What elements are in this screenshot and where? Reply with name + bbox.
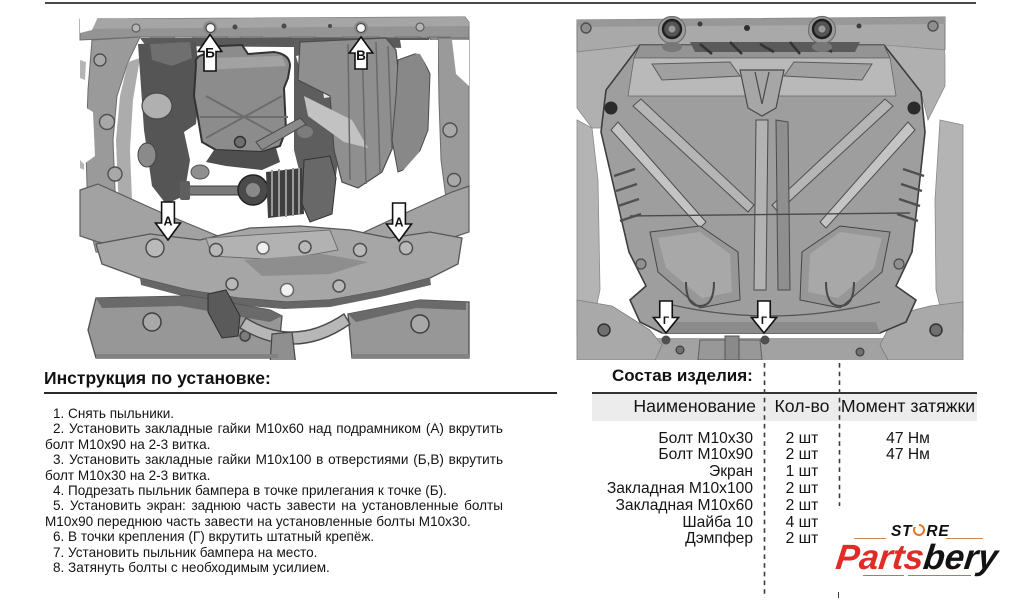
svg-text:В: В [356, 48, 366, 63]
svg-text:Г: Г [761, 315, 768, 327]
svg-text:Г: Г [663, 315, 670, 327]
svg-text:Б: Б [205, 46, 215, 61]
svg-text:А: А [163, 215, 172, 229]
svg-text:А: А [394, 216, 403, 230]
